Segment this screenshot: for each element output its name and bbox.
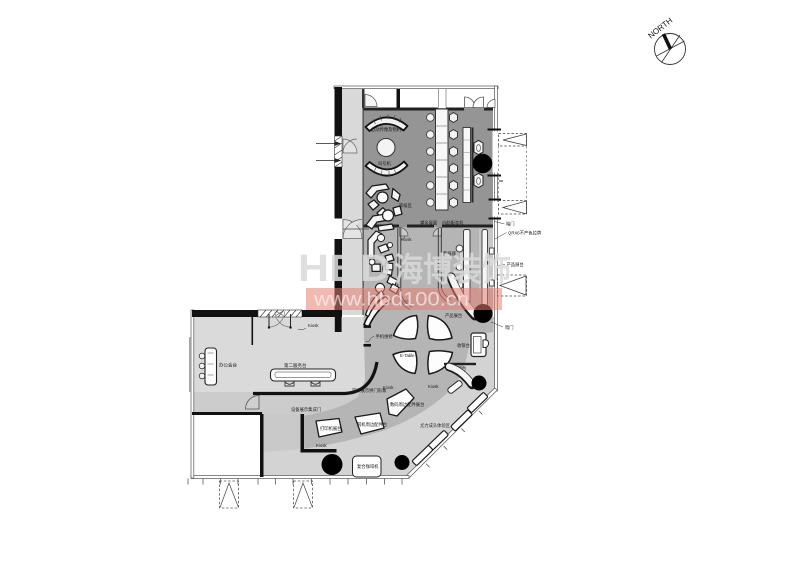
svg-text:手机维修: 手机维修 [376, 333, 394, 340]
svg-text:等候区: 等候区 [399, 202, 413, 209]
svg-text:暗门: 暗门 [505, 324, 514, 331]
svg-text:www.hbd100.cn: www.hbd100.cn [313, 289, 469, 311]
svg-text:HBD: HBD [298, 248, 391, 290]
svg-text:叫号机: 叫号机 [378, 160, 392, 167]
svg-text:打印机展台: 打印机展台 [320, 425, 341, 432]
svg-text:第二服务台: 第二服务台 [284, 362, 307, 369]
svg-text:办公会台: 办公会台 [219, 362, 237, 369]
svg-text:数码周边配件展台: 数码周边配件展台 [390, 401, 424, 408]
svg-text:收银台: 收银台 [457, 342, 470, 349]
svg-text:Kiosk: Kiosk [308, 323, 319, 328]
svg-text:迎宾展示拱门形象: 迎宾展示拱门形象 [352, 387, 387, 394]
svg-text:尤力成头体验区: 尤力成头体验区 [420, 422, 451, 429]
svg-text:海博装饰: 海博装饰 [394, 251, 511, 288]
svg-text:复合咖啡机: 复合咖啡机 [357, 463, 379, 470]
svg-text:E-Table: E-Table [400, 353, 415, 358]
svg-text:Kiosk: Kiosk [316, 443, 327, 448]
svg-text:Kiosk: Kiosk [401, 237, 412, 242]
svg-text:耳机周边配件台: 耳机周边配件台 [357, 421, 387, 428]
svg-text:设备展示集成门: 设备展示集成门 [291, 406, 321, 413]
svg-text:暗门: 暗门 [506, 221, 515, 228]
svg-text:自动贩卖机: 自动贩卖机 [442, 220, 464, 227]
svg-text:产品展台: 产品展台 [445, 312, 462, 319]
svg-text:QRX6不产色拉牌: QRX6不产色拉牌 [508, 230, 542, 237]
svg-text:自动传像及物机: 自动传像及物机 [371, 126, 402, 133]
svg-text:Kiosk: Kiosk [428, 384, 439, 389]
